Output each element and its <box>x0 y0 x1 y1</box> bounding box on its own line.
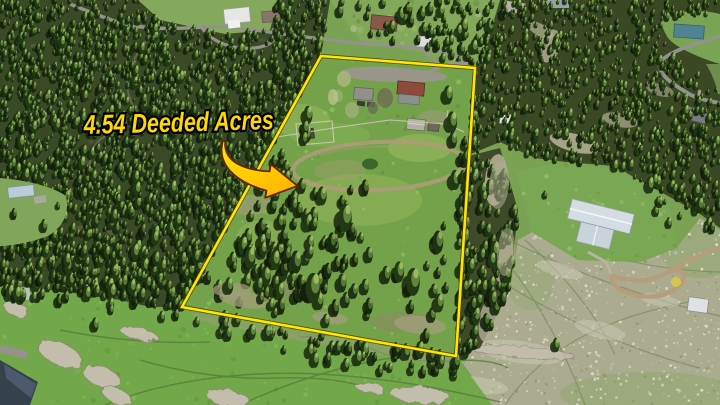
svg-text:4.54 Deeded Acres: 4.54 Deeded Acres <box>83 105 275 140</box>
